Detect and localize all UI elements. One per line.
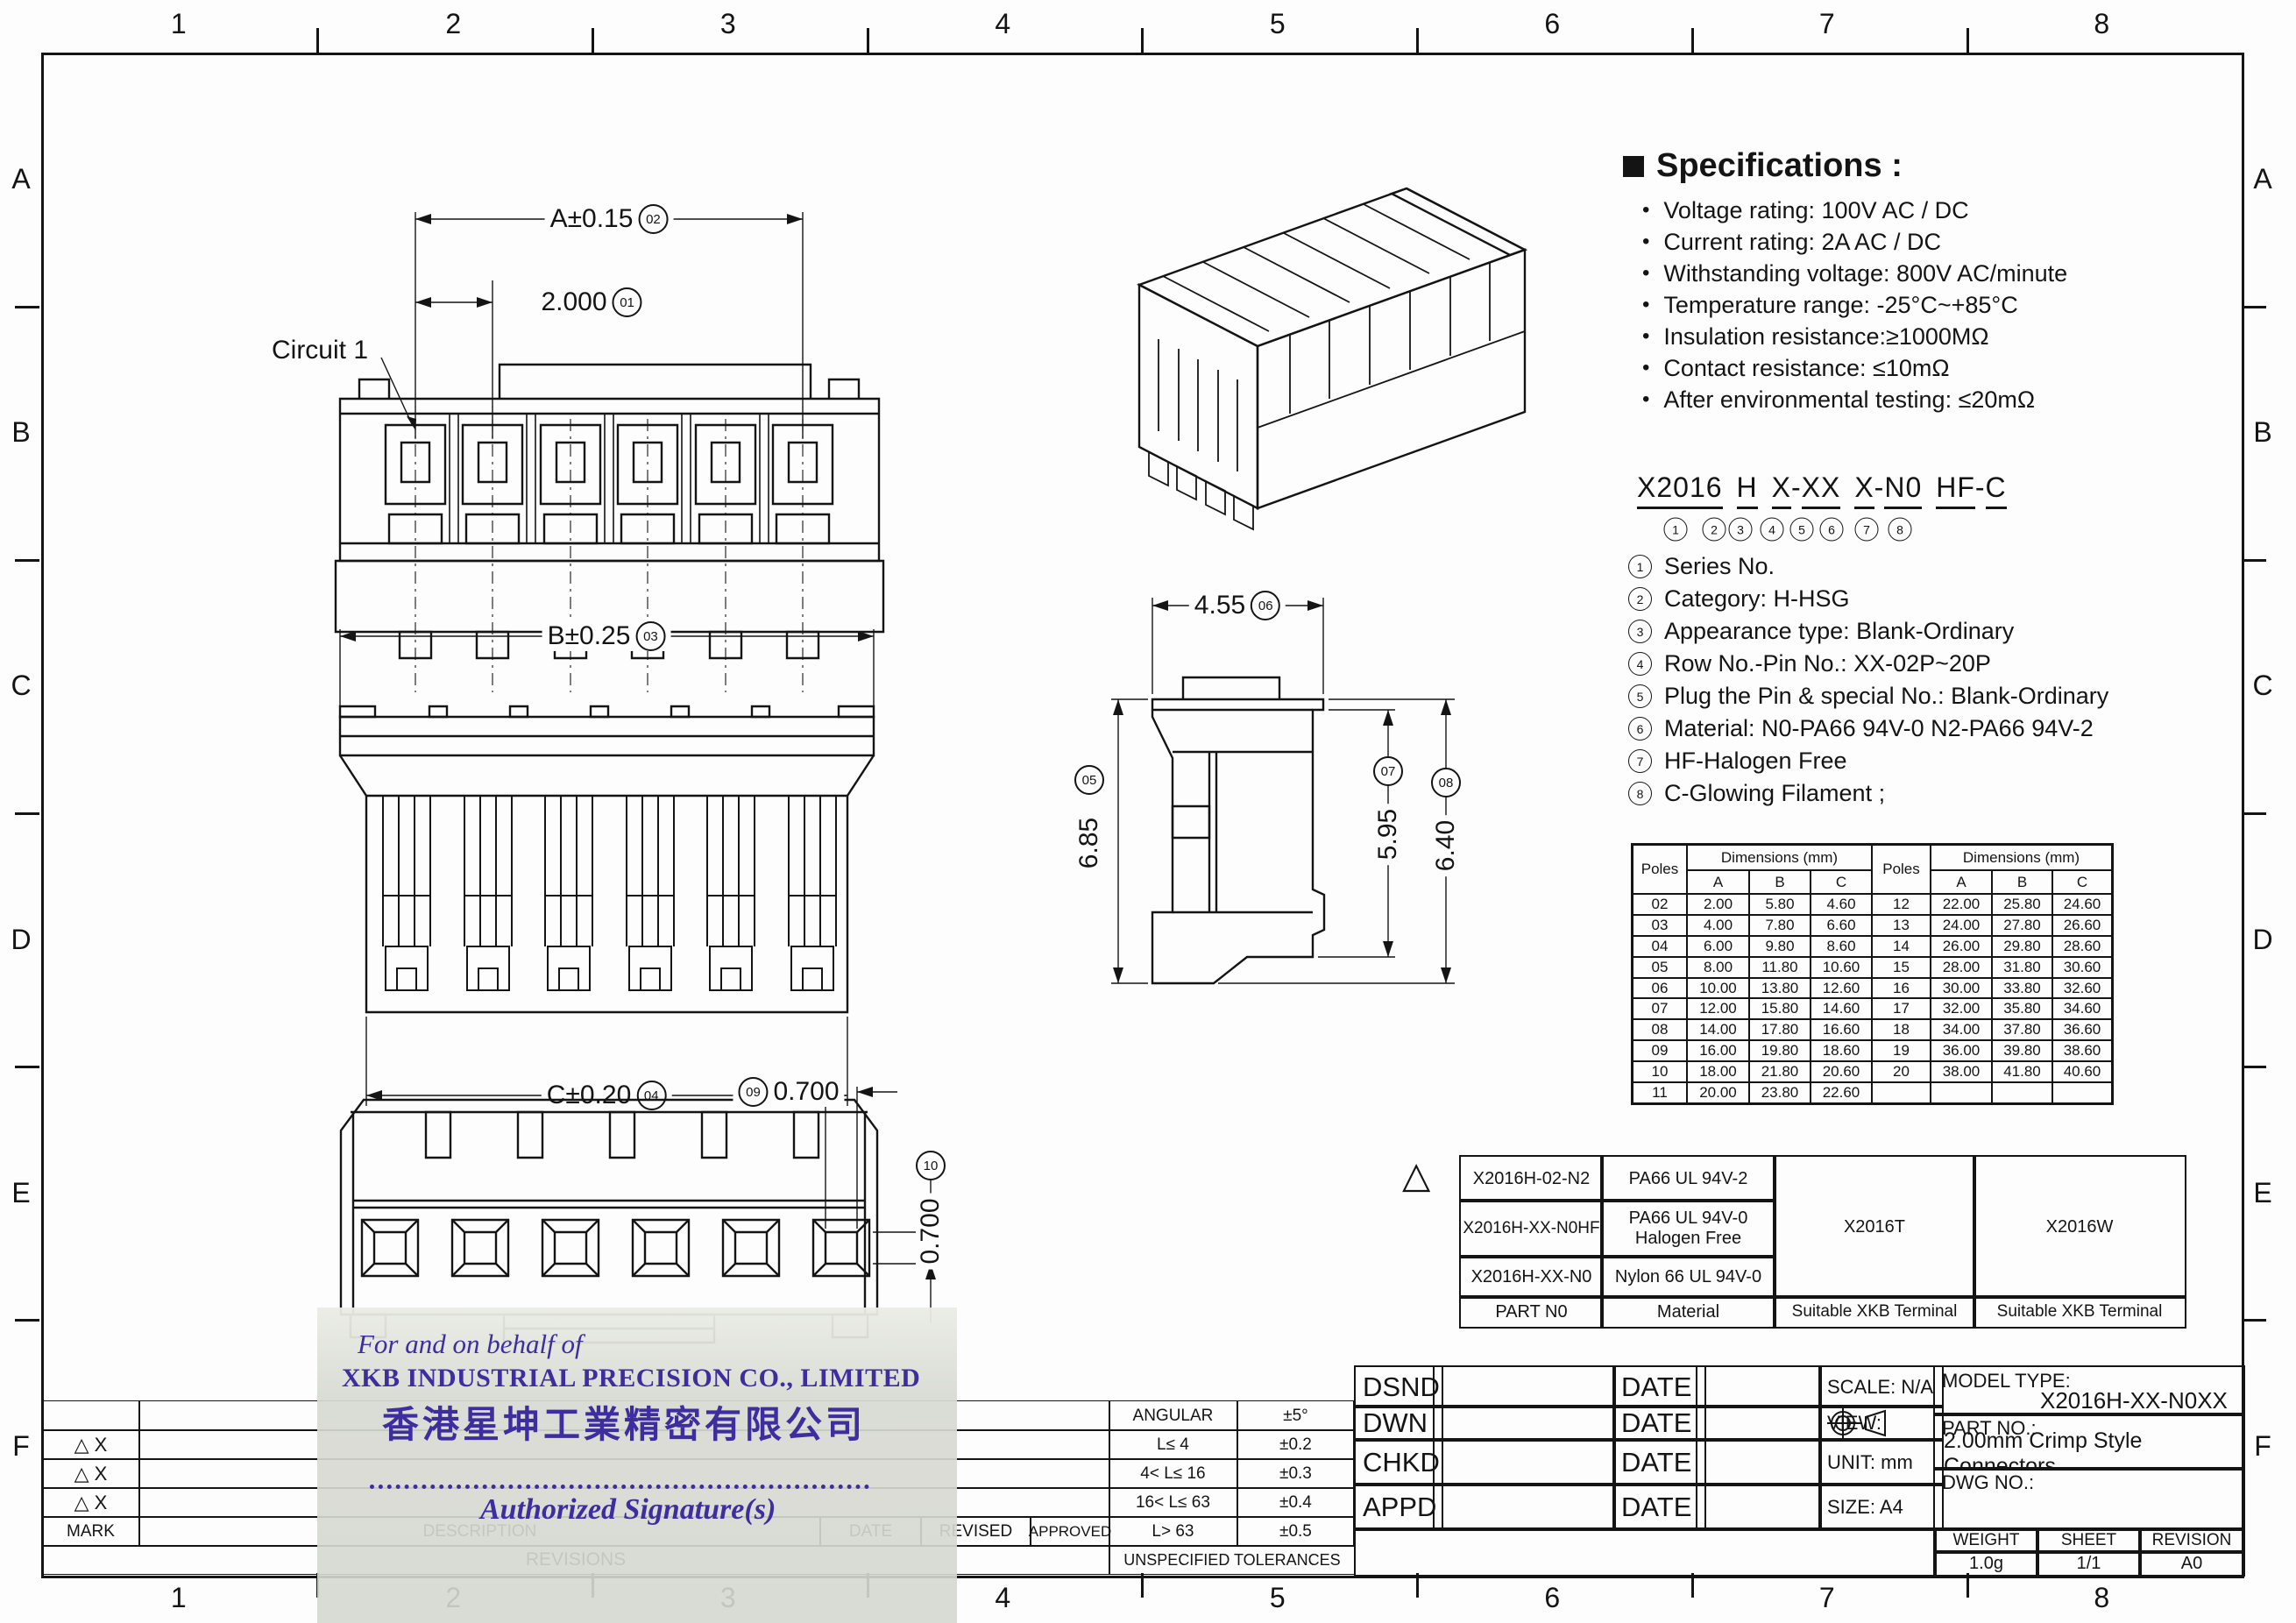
dim-ref-circle: 10 [916, 1151, 946, 1180]
legend-text: C-Glowing Filament ; [1664, 780, 1885, 807]
cell-b: 37.80 [1992, 1019, 2052, 1040]
zone-number: 7 [1819, 8, 1835, 40]
dwn-label: DWN [1354, 1405, 1443, 1442]
date-field [1696, 1483, 1822, 1531]
tolerance-rows: ANGULAR ±5° L≤ 4 ±0.2 4< L≤ 16 ±0.3 16< … [1109, 1400, 1354, 1545]
stamp-line-1: For and on behalf of [358, 1329, 583, 1360]
zone-number: 1 [171, 1582, 187, 1614]
footer-terminal: Suitable XKB Terminal [1773, 1295, 1976, 1329]
tolerance-row: L≤ 4 ±0.2 [1109, 1429, 1354, 1458]
cell-a: 30.00 [1931, 978, 1992, 999]
spec-item-text: Current rating: 2A AC / DC [1663, 229, 1941, 256]
dim-text: A±0.15 [550, 204, 634, 234]
size-label: SIZE: A4 [1818, 1483, 1944, 1531]
spec-item: • Temperature range: -25°C~+85°C [1642, 289, 2256, 321]
zone-number: 3 [720, 8, 736, 40]
col-header-b: B [1992, 870, 2052, 894]
dim-ref-circle: 07 [1373, 756, 1403, 786]
section-marker-icon [1623, 156, 1644, 177]
cell-b: 11.80 [1749, 957, 1811, 978]
material-cell: PA66 UL 94V-2 [1600, 1155, 1776, 1202]
cell-b: 33.80 [1992, 978, 2052, 999]
col-header-dimensions: Dimensions (mm) [1687, 845, 1872, 870]
cell-poles: 02 [1633, 894, 1687, 915]
dim-ref-circle: 08 [1431, 768, 1461, 797]
date-field [1696, 1365, 1822, 1408]
cell-c: 6.60 [1811, 915, 1872, 936]
scale-label: SCALE: N/A [1818, 1365, 1944, 1408]
dim-text: 5.95 [1373, 809, 1403, 860]
tolerance-row: 4< L≤ 16 ±0.3 [1109, 1458, 1354, 1487]
zone-number: 6 [1544, 8, 1560, 40]
dim-text: 4.55 [1194, 591, 1245, 620]
cell-b: 13.80 [1749, 978, 1811, 999]
date-field [1696, 1405, 1822, 1442]
bullet-icon: • [1642, 324, 1649, 349]
spec-item-text: Temperature range: -25°C~+85°C [1663, 292, 2017, 319]
zone-letter: D [2252, 924, 2272, 956]
legend-item: 6 Material: N0-PA66 94V-0 N2-PA66 94V-2 [1628, 712, 2259, 745]
dim-label-pitch: 2.00001 [535, 287, 647, 317]
dim-label-A: A±0.1502 [545, 204, 674, 234]
zone-number: 6 [1544, 1582, 1560, 1614]
cell-a: 10.00 [1687, 978, 1749, 999]
legend-item: 2 Category: H-HSG [1628, 583, 2259, 615]
code-ref-circle: 6 [1820, 518, 1844, 542]
cell-b: 25.80 [1992, 894, 2052, 915]
dim-label-B: B±0.2503 [542, 621, 671, 651]
cell-a: 24.00 [1931, 915, 1992, 936]
zone-letter: B [11, 416, 30, 449]
cell-poles: 03 [1633, 915, 1687, 936]
spec-item-text: Insulation resistance:≥1000MΩ [1663, 323, 1988, 351]
cell-poles: 06 [1633, 978, 1687, 999]
legend-item: 3 Appearance type: Blank-Ordinary [1628, 615, 2259, 648]
dim-text: 2.000 [541, 287, 606, 317]
revision-value: A0 [2138, 1550, 2245, 1577]
cell-a: 18.00 [1687, 1061, 1749, 1082]
cell-b: 9.80 [1749, 936, 1811, 957]
tolerance-row: 16< L≤ 63 ±0.4 [1109, 1487, 1354, 1516]
dim-ref-circle: 02 [638, 204, 668, 234]
tolerance-range: L> 63 [1109, 1516, 1237, 1547]
cell-c: 24.60 [2052, 894, 2112, 915]
dim-label-0700-h: 090.700 [733, 1077, 844, 1107]
cell-poles: 13 [1872, 915, 1931, 936]
legend-text: Appearance type: Blank-Ordinary [1664, 618, 2014, 645]
zone-letter: E [11, 1177, 30, 1209]
dim-text: B±0.25 [548, 621, 631, 651]
cell-b: 27.80 [1992, 915, 2052, 936]
mark-cell: △ X [41, 1458, 140, 1489]
appd-label: APPD [1354, 1483, 1443, 1531]
tolerance-value: ±0.2 [1237, 1429, 1354, 1460]
cell-c: 40.60 [2052, 1061, 2112, 1082]
code-ref-circle: 5 [1790, 518, 1814, 542]
cell-a: 14.00 [1687, 1019, 1749, 1040]
code-part: H [1737, 471, 1758, 509]
code-part: - [1791, 471, 1802, 504]
cell-c: 8.60 [1811, 936, 1872, 957]
drawing-sheet: 12345678 12345678 ABCDEF ABCDEF [0, 0, 2296, 1623]
col-header-b: B [1749, 870, 1811, 894]
code-part: - [1874, 471, 1885, 504]
date-label: DATE [1612, 1483, 1706, 1531]
legend-number-circle: 2 [1628, 587, 1652, 611]
dim-ref-circle: 01 [613, 287, 642, 317]
model-type-label: MODEL TYPE: [1942, 1370, 2071, 1393]
dsnd-label: DSND [1354, 1365, 1443, 1408]
zone-letter: A [11, 163, 30, 195]
cell-a: 26.00 [1931, 936, 1992, 957]
cell-b: 21.80 [1749, 1061, 1811, 1082]
dwg-no-label: DWG NO.: [1942, 1471, 2034, 1494]
legend-number-circle: 3 [1628, 620, 1652, 643]
code-part: N0 [1884, 471, 1922, 509]
date-label: DATE [1612, 1365, 1706, 1408]
cell-a: 38.00 [1931, 1061, 1992, 1082]
dim-label-5-95: 5.95 [1373, 804, 1403, 865]
tolerance-range: 4< L≤ 16 [1109, 1458, 1237, 1489]
cell-a: 20.00 [1687, 1082, 1749, 1103]
stamp-company-name-cn: 香港星坤工業精密有限公司 [382, 1395, 866, 1449]
title-block: DSND DATE SCALE: N/A DWN DATE VIEW: CHKD… [1354, 1365, 2242, 1573]
dim-text: 6.40 [1431, 820, 1461, 871]
cell-c: 10.60 [1811, 957, 1872, 978]
code-ref-circle: 8 [1889, 518, 1912, 542]
zone-letter: A [2253, 163, 2271, 195]
zone-letter: F [12, 1430, 30, 1463]
revision-triangle-icon: △ [1402, 1153, 1430, 1196]
cell-poles: 09 [1633, 1040, 1687, 1061]
terminal-cell: X2016T [1773, 1155, 1976, 1299]
tolerance-row: L> 63 ±0.5 [1109, 1516, 1354, 1545]
zone-number: 1 [171, 8, 187, 40]
zone-number: 4 [995, 1582, 1010, 1614]
cell-c: 18.60 [1811, 1040, 1872, 1061]
spec-item: • Withstanding voltage: 800V AC/minute [1642, 258, 2256, 289]
cell-b: 15.80 [1749, 998, 1811, 1019]
cell-c: 20.60 [1811, 1061, 1872, 1082]
code-part: X [1854, 471, 1874, 509]
cell-c: 34.60 [2052, 998, 2112, 1019]
cell-a: 16.00 [1687, 1040, 1749, 1061]
cell-c: 32.60 [2052, 978, 2112, 999]
cell-a: 6.00 [1687, 936, 1749, 957]
code-ref-circle: 1 [1664, 518, 1688, 542]
cell-c: 4.60 [1811, 894, 1872, 915]
cell-b: 41.80 [1992, 1061, 2052, 1082]
cell-poles: 16 [1872, 978, 1931, 999]
cell-c: 30.60 [2052, 957, 2112, 978]
specifications-list: • Voltage rating: 100V AC / DC • Current… [1642, 195, 2256, 415]
code-part: XX [1802, 471, 1841, 509]
cell-a: 12.00 [1687, 998, 1749, 1019]
cell-a: 8.00 [1687, 957, 1749, 978]
cell-c: 14.60 [1811, 998, 1872, 1019]
zone-letter: E [2253, 1177, 2271, 1209]
legend-number-circle: 8 [1628, 782, 1652, 805]
stamp-dotted-line [370, 1485, 869, 1489]
dwg-no-cell: DWG NO.: [1933, 1467, 2245, 1531]
tolerance-value: ±5° [1237, 1400, 1354, 1431]
zone-letter: D [11, 924, 31, 956]
legend-text: HF-Halogen Free [1664, 748, 1847, 775]
cell-b: 31.80 [1992, 957, 2052, 978]
cell-poles: 07 [1633, 998, 1687, 1019]
cell-poles: 18 [1872, 1019, 1931, 1040]
col-header-poles: Poles [1633, 845, 1687, 894]
cell-b [1992, 1082, 2052, 1103]
zone-number: 7 [1819, 1582, 1835, 1614]
dim-label-0700-v: 0.700 [916, 1193, 946, 1269]
cell-c: 22.60 [1811, 1082, 1872, 1103]
legend-text: Row No.-Pin No.: XX-02P~20P [1664, 650, 1991, 677]
tolerance-value: ±0.3 [1237, 1458, 1354, 1489]
cell-poles: 15 [1872, 957, 1931, 978]
date-field [1696, 1438, 1822, 1486]
code-ref-circle: 3 [1729, 518, 1753, 542]
spec-item-text: Contact resistance: ≤10mΩ [1663, 355, 1949, 382]
footer-terminal: Suitable XKB Terminal [1973, 1295, 2186, 1329]
zone-number: 4 [995, 8, 1010, 40]
chkd-label: CHKD [1354, 1438, 1443, 1486]
legend-number-circle: 7 [1628, 749, 1652, 773]
part-no-cell: X2016H-XX-N0 [1459, 1255, 1604, 1299]
cell-a: 22.00 [1931, 894, 1992, 915]
material-table: X2016H-02-N2 PA66 UL 94V-2 X2016H-XX-N0H… [1459, 1155, 2183, 1325]
bullet-icon: • [1642, 293, 1649, 317]
legend-number-circle: 6 [1628, 717, 1652, 741]
part-number-code: X2016HX-XXX-N0HF-C [1637, 471, 2007, 509]
cell-poles: 12 [1872, 894, 1931, 915]
dim-ref-circle: 09 [738, 1077, 768, 1107]
col-header-dimensions: Dimensions (mm) [1931, 845, 2112, 870]
dsnd-name-field [1433, 1365, 1616, 1408]
dwn-name-field [1433, 1405, 1616, 1442]
cell-a: 28.00 [1931, 957, 1992, 978]
zone-letter: C [11, 670, 31, 702]
unspecified-tolerances-label: UNSPECIFIED TOLERANCES [1109, 1545, 1356, 1575]
cell-b: 35.80 [1992, 998, 2052, 1019]
weight-value: 1.0g [1933, 1550, 2039, 1577]
legend-item: 7 HF-Halogen Free [1628, 745, 2259, 777]
mark-cell [41, 1400, 140, 1431]
dim-label-6-40: 6.40 [1431, 815, 1461, 876]
cell-c: 26.60 [2052, 915, 2112, 936]
legend-text: Series No. [1664, 553, 1775, 580]
col-header-c: C [1811, 870, 1872, 894]
cell-c: 38.60 [2052, 1040, 2112, 1061]
footer-material: Material [1600, 1295, 1776, 1329]
code-part: C [1986, 471, 2007, 509]
bullet-icon: • [1642, 198, 1649, 223]
cell-poles: 11 [1633, 1082, 1687, 1103]
isometric-view-drawing [1008, 105, 1569, 561]
cell-poles: 04 [1633, 936, 1687, 957]
company-stamp: For and on behalf of XKB INDUSTRIAL PREC… [317, 1308, 957, 1623]
terminal-cell: X2016W [1973, 1155, 2186, 1299]
legend-text: Material: N0-PA66 94V-0 N2-PA66 94V-2 [1664, 715, 2094, 742]
tolerance-value: ±0.5 [1237, 1516, 1354, 1547]
cell-c: 16.60 [1811, 1019, 1872, 1040]
material-cell: PA66 UL 94V-0 Halogen Free [1600, 1199, 1776, 1258]
dim-ref-circle: 03 [635, 621, 665, 651]
zone-number: 5 [1270, 8, 1286, 40]
spec-item: • After environmental testing: ≤20mΩ [1642, 384, 2256, 415]
cell-a: 34.00 [1931, 1019, 1992, 1040]
spec-item: • Voltage rating: 100V AC / DC [1642, 195, 2256, 226]
code-ref-circle: 4 [1761, 518, 1784, 542]
part-no-cell: X2016H-02-N2 [1459, 1155, 1604, 1202]
chkd-name-field [1433, 1438, 1616, 1486]
material-cell: Nylon 66 UL 94V-0 [1600, 1255, 1776, 1299]
zone-numbers-top: 12345678 [41, 4, 2239, 44]
legend-item: 5 Plug the Pin & special No.: Blank-Ordi… [1628, 680, 2259, 712]
tolerance-range: ANGULAR [1109, 1400, 1237, 1431]
zone-number: 5 [1270, 1582, 1286, 1614]
legend-number-circle: 1 [1628, 555, 1652, 578]
spec-item: • Insulation resistance:≥1000MΩ [1642, 321, 2256, 352]
part-no-cell: X2016H-XX-N0HF [1459, 1199, 1604, 1258]
date-label: DATE [1612, 1438, 1706, 1486]
cell-poles: 19 [1872, 1040, 1931, 1061]
code-ref-circle: 7 [1855, 518, 1879, 542]
model-type-cell: MODEL TYPE: X2016H-XX-N0XX [1933, 1365, 2245, 1416]
legend-text: Category: H-HSG [1664, 585, 1850, 613]
legend-text: Plug the Pin & special No.: Blank-Ordina… [1664, 683, 2108, 710]
dim-ref-circle: 05 [1074, 765, 1104, 795]
cell-poles: 05 [1633, 957, 1687, 978]
legend-item: 4 Row No.-Pin No.: XX-02P~20P [1628, 648, 2259, 680]
cell-b: 19.80 [1749, 1040, 1811, 1061]
zone-letter: F [2254, 1430, 2271, 1463]
bullet-icon: • [1642, 356, 1649, 380]
cell-c: 12.60 [1811, 978, 1872, 999]
sheet-value: 1/1 [2036, 1550, 2142, 1577]
zone-number: 8 [2094, 1582, 2109, 1614]
empty-cell [1354, 1527, 1937, 1577]
specifications-title: Specifications : [1623, 147, 1903, 185]
part-no-cell: PART NO.: 2.00mm Crimp Style Connectors [1933, 1413, 2245, 1471]
tolerance-range: L≤ 4 [1109, 1429, 1237, 1460]
dim-text: 0.700 [773, 1077, 839, 1107]
bullet-icon: • [1642, 261, 1649, 286]
cell-b: 17.80 [1749, 1019, 1811, 1040]
cell-poles: 08 [1633, 1019, 1687, 1040]
circuit-1-label: Circuit 1 [266, 336, 373, 365]
cell-b: 29.80 [1992, 936, 2052, 957]
code-part: HF [1936, 471, 1975, 509]
cell-c [2052, 1082, 2112, 1103]
cell-b: 5.80 [1749, 894, 1811, 915]
cell-a: 36.00 [1931, 1040, 1992, 1061]
specifications-title-text: Specifications : [1656, 147, 1903, 185]
cell-a: 32.00 [1931, 998, 1992, 1019]
stamp-authorized-signature: Authorized Signature(s) [480, 1493, 776, 1527]
cell-poles: 17 [1872, 998, 1931, 1019]
tolerance-range: 16< L≤ 63 [1109, 1487, 1237, 1518]
tolerance-table: ANGULAR ±5° L≤ 4 ±0.2 4< L≤ 16 ±0.3 16< … [1109, 1400, 1354, 1573]
code-part: - [1975, 471, 1986, 504]
zone-letters-left: ABCDEF [4, 53, 39, 1573]
code-ref-circle: 2 [1703, 518, 1726, 542]
cell-a: 4.00 [1687, 915, 1749, 936]
dim-text: 6.85 [1074, 818, 1104, 868]
cell-c: 28.60 [2052, 936, 2112, 957]
col-header-a: A [1687, 870, 1749, 894]
spec-item: • Contact resistance: ≤10mΩ [1642, 352, 2256, 384]
zone-number: 2 [445, 8, 461, 40]
cell-poles: 10 [1633, 1061, 1687, 1082]
dim-text: Circuit 1 [272, 336, 368, 365]
col-header-a: A [1931, 870, 1992, 894]
legend-item: 8 C-Glowing Filament ; [1628, 777, 2259, 810]
dim-label-4-55: 4.5506 [1189, 591, 1286, 620]
part-code-legend: 1 Series No. 2 Category: H-HSG 3 Appeara… [1628, 550, 2259, 810]
third-angle-projection-icon [1827, 1408, 1892, 1438]
appd-name-field [1433, 1483, 1616, 1531]
poles-dimensions-table: Poles Dimensions (mm) Poles Dimensions (… [1631, 843, 2114, 1105]
legend-number-circle: 5 [1628, 684, 1652, 708]
cell-a [1931, 1082, 1992, 1103]
tolerance-row: ANGULAR ±5° [1109, 1400, 1354, 1429]
tolerance-value: ±0.4 [1237, 1487, 1354, 1518]
code-part: X [1772, 471, 1791, 509]
dim-text: 0.700 [916, 1198, 946, 1264]
cell-b: 23.80 [1749, 1082, 1811, 1103]
mark-cell: △ X [41, 1429, 140, 1460]
code-part: X2016 [1637, 471, 1723, 509]
bullet-icon: • [1642, 230, 1649, 254]
cell-b: 7.80 [1749, 915, 1811, 936]
dim-ref-circle: 06 [1251, 591, 1280, 620]
cell-poles [1872, 1082, 1931, 1103]
footer-part-no: PART N0 [1459, 1295, 1604, 1329]
mark-cell: △ X [41, 1487, 140, 1518]
zone-letter: B [2253, 416, 2271, 449]
approved-header: APPROVED [1030, 1516, 1110, 1547]
stamp-company-name-en: XKB INDUSTRIAL PRECISION CO., LIMITED [342, 1364, 920, 1393]
mark-header: MARK [41, 1516, 140, 1547]
bullet-icon: • [1642, 387, 1649, 412]
col-header-c: C [2052, 870, 2112, 894]
cell-poles: 14 [1872, 936, 1931, 957]
view-cell: VIEW: [1818, 1405, 1944, 1442]
part-no-label: PART NO.: [1942, 1417, 2037, 1440]
spec-item-text: Withstanding voltage: 800V AC/minute [1663, 260, 2067, 287]
cell-a: 2.00 [1687, 894, 1749, 915]
zone-number: 8 [2094, 8, 2109, 40]
spec-item-text: After environmental testing: ≤20mΩ [1663, 386, 2035, 414]
spec-item: • Current rating: 2A AC / DC [1642, 226, 2256, 258]
date-label: DATE [1612, 1405, 1706, 1442]
legend-item: 1 Series No. [1628, 550, 2259, 583]
unit-label: UNIT: mm [1818, 1438, 1944, 1486]
cell-b: 39.80 [1992, 1040, 2052, 1061]
cell-poles: 20 [1872, 1061, 1931, 1082]
dim-label-6-85: 6.85 [1074, 812, 1104, 874]
spec-item-text: Voltage rating: 100V AC / DC [1663, 197, 1968, 224]
col-header-poles: Poles [1872, 845, 1931, 894]
cell-c: 36.60 [2052, 1019, 2112, 1040]
legend-number-circle: 4 [1628, 652, 1652, 676]
